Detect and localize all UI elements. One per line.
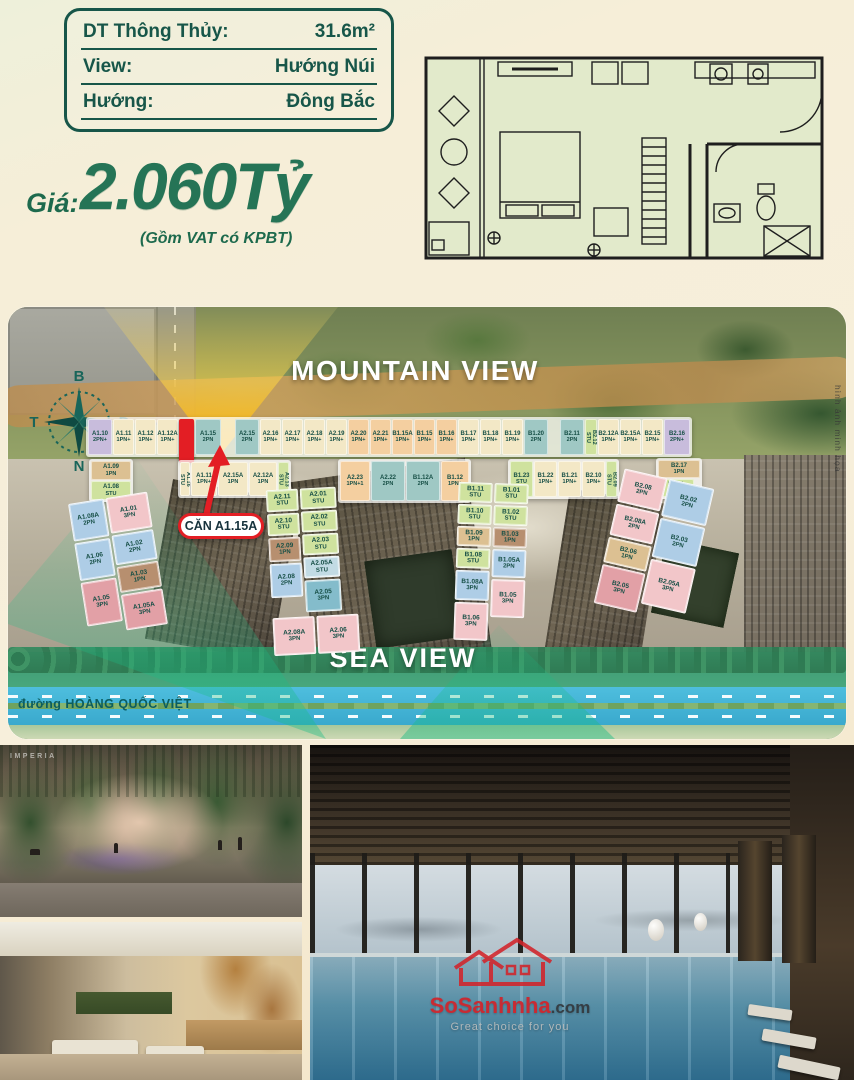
unit-cell-A2.09: A2.091PN [268, 537, 301, 563]
spec-label-view: View: [83, 56, 132, 78]
unit-cell-B1.22: B1.221PN+ [534, 461, 557, 497]
stone-column [782, 835, 816, 963]
unit-row-top: A1.102PN+A1.111PN+A1.121PN+A1.12A1PN+A1.… [86, 417, 692, 457]
unit-cell-B2.15A: B2.15A1PN+ [620, 419, 641, 455]
vase [648, 919, 664, 941]
spec-value-area: 31.6m² [315, 21, 375, 43]
unit-cell-B1.21: B1.211PN+ [558, 461, 581, 497]
pool-ceiling [310, 745, 854, 865]
unit-cell-A1.11: A1.111PN+ [113, 419, 134, 455]
spec-value-direction: Đông Bắc [286, 91, 375, 113]
unit-cell-B2.12: B2.12STU [585, 419, 597, 455]
price-amount: 2.060Tỷ [80, 148, 308, 224]
unit-cell-A2.01: A2.01STU [300, 487, 337, 510]
unit-cell-A1.09: A1.091PN [91, 461, 131, 480]
unit-cell-B2.12A: B2.12A1PN+ [598, 419, 619, 455]
spec-row-view: View: Hướng Núi [81, 50, 377, 85]
unit-cell-B1.16: B1.161PN+ [436, 419, 457, 455]
compass-south: N [74, 458, 85, 475]
unit-cell-B1.10: B1.10STU [457, 504, 492, 525]
lobby-green-wall [76, 992, 172, 1014]
unit-cell-B1.05: B1.053PN [490, 579, 525, 618]
unit-cell-B1.03: B1.031PN [493, 527, 528, 548]
unit-cell-B1.20: B1.202PN [524, 419, 548, 455]
unit-cell-A1.12: A1.121PN+ [135, 419, 156, 455]
neighbor-building [744, 455, 846, 660]
watermark-name: SoSanhnha.com [420, 993, 600, 1019]
vase [694, 913, 707, 931]
lobby-floor [0, 1054, 302, 1080]
unit-cell-A2.08: A2.082PN [270, 563, 304, 599]
unit-callout: CĂN A1.15A [178, 513, 264, 539]
unit-cell-B1.11: B1.11STU [458, 482, 493, 503]
unit-row2-mid2: A2.231PN+1A2.222PNB1.12A2PNB1.121PN+ [338, 459, 471, 503]
spec-row-direction: Hướng: Đông Bắc [81, 85, 377, 120]
spec-label-area: DT Thông Thủy: [83, 21, 229, 43]
unit-cell-B2.10: B2.101PN+ [582, 461, 605, 497]
unit-cell-A2.05A: A2.05ASTU [303, 556, 340, 579]
floorplan-drawing [412, 12, 848, 266]
unit-cell-A2.18: A2.181PN+ [304, 419, 325, 455]
watermark: SoSanhnha.com Great choice for you [420, 936, 600, 1033]
spec-value-view: Hướng Núi [275, 56, 375, 78]
compass-north: B [74, 368, 85, 385]
unit-cell-A1.02: A1.022PN [111, 529, 157, 565]
lobby-photo: IMPERIA [0, 922, 302, 1080]
unit-cell-A2.22: A2.222PN [371, 461, 405, 501]
spec-label-direction: Hướng: [83, 91, 154, 113]
master-plan: MOUNTAIN VIEW SEA VIEW đường HOÀNG QUỐC … [8, 307, 846, 739]
person-silhouette [218, 840, 222, 850]
reception-desk [186, 1020, 302, 1050]
unit-cell-A1.06: A1.062PN [74, 538, 116, 581]
unit-cell-A2.19: A2.191PN+ [326, 419, 347, 455]
unit-cell-A2.21: A2.211PN+ [370, 419, 391, 455]
unit-cell-B1.06: B1.063PN [453, 602, 488, 641]
unit-cell-A1.12A: A1.12A1PN+ [157, 419, 178, 455]
unit-cell-A2.17: A2.171PN+ [282, 419, 303, 455]
unit-cell-B1.08A: B1.08A3PN [455, 570, 490, 601]
unit-cell-B1.01: B1.01STU [494, 483, 529, 504]
courtyard-left [364, 549, 463, 648]
unit-cell-B1.15A: B1.15A1PN+ [392, 419, 413, 455]
unit-cell-A2.16: A2.161PN+ [260, 419, 281, 455]
unit-cell-B2.16: B2.162PN+ [664, 419, 690, 455]
unit-cell-B1.18: B1.181PN+ [480, 419, 501, 455]
person-silhouette [114, 843, 118, 853]
unit-cell-B2.17: B2.171PN [658, 460, 700, 478]
unit-cell-A2.11: A2.11STU [266, 489, 299, 513]
unit-cell-B1.12A: B1.12A2PN [406, 461, 440, 501]
lobby-ceiling [0, 922, 302, 956]
person-silhouette [30, 849, 40, 855]
unit-cell-A2.06: A2.063PN [316, 614, 360, 654]
unit-cell-A1.08A: A1.08A2PN [68, 498, 110, 541]
unit-cell-B1.17: B1.171PN+ [458, 419, 479, 455]
watermark-tagline: Great choice for you [420, 1021, 600, 1033]
stone-column [738, 841, 772, 961]
block-a2: A2.11STUA2.10STUA2.091PNA2.082PN A2.01ST… [266, 486, 361, 656]
unit-cell-A2.10: A2.10STU [267, 513, 300, 537]
unit-cell-B1.09: B1.091PN [457, 526, 492, 547]
unit-cell-B1.05A: B1.05A2PN [491, 549, 526, 578]
unit-cell-B2.09: B2.09STU [606, 461, 617, 497]
unit-cell-B2.15: B2.151PN+ [642, 419, 663, 455]
block-b1: B1.11STUB1.10STUB1.091PNB1.08STUB1.08A3P… [453, 482, 528, 642]
unit-cell-A1.03: A1.031PN [116, 561, 162, 593]
compass-west: T [29, 414, 38, 431]
unit-cell-A1.05: A1.053PN [81, 577, 123, 626]
unit-cell-B2.11: B2.112PN [560, 419, 584, 455]
unit-cell-A2.20: A2.201PN+ [348, 419, 369, 455]
imperia-logo: IMPERIA [10, 753, 57, 760]
unit-cell-B1.15: B1.151PN+ [414, 419, 435, 455]
unit-cell-B1.08: B1.08STU [456, 548, 491, 569]
house-logo-icon [445, 936, 575, 988]
spec-box: DT Thông Thủy: 31.6m² View: Hướng Núi Hư… [64, 8, 394, 132]
unit-cell-A2.03: A2.03STU [302, 533, 339, 556]
price-label: Giá: [26, 188, 79, 219]
unit-cell-A1.01: A1.013PN [106, 492, 153, 534]
unit-cell-B1.19: B1.191PN+ [502, 419, 523, 455]
price-note: (Gồm VAT có KPBT) [140, 230, 292, 248]
person-silhouette [238, 837, 242, 850]
spec-row-area: DT Thông Thủy: 31.6m² [81, 15, 377, 50]
unit-cell-A1.10: A1.102PN+ [88, 419, 112, 455]
garden-photo: IMPERIA [0, 745, 302, 917]
road-name-label: đường HOÀNG QUỐC VIỆT [18, 697, 192, 711]
flyer-canvas: DT Thông Thủy: 31.6m² View: Hướng Núi Hư… [0, 0, 854, 1080]
unit-cell-A2.05: A2.053PN [304, 579, 342, 613]
illustration-note: hình ảnh minh họa [833, 385, 843, 472]
unit-cell-A2.08A: A2.08A3PN [272, 616, 316, 656]
unit-cell-A1.05A: A1.05A3PN [121, 588, 168, 630]
unit-cell-B1.02: B1.02STU [493, 505, 528, 526]
sea-view-label: SEA VIEW [8, 643, 798, 674]
unit-cell-A2.02: A2.02STU [301, 510, 338, 533]
